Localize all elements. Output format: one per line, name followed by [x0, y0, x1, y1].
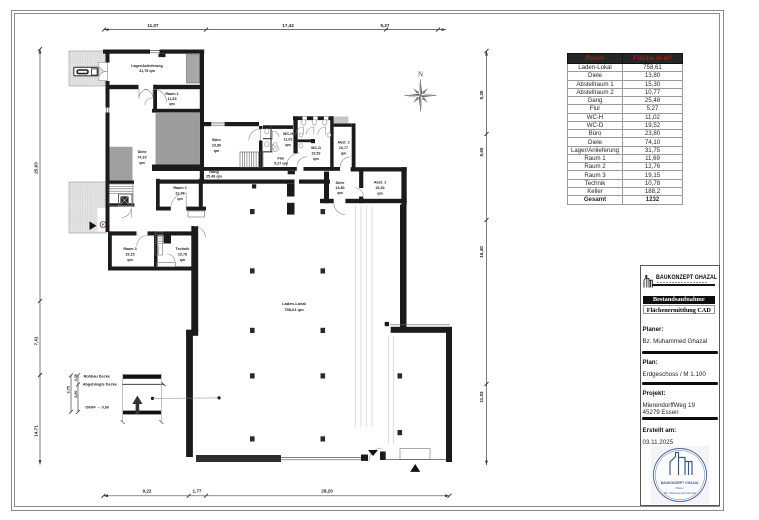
svg-text:19,15: 19,15 — [125, 253, 134, 257]
svg-text:74,10: 74,10 — [137, 156, 146, 160]
svg-text:9,22: 9,22 — [143, 489, 152, 494]
svg-text:28,20: 28,20 — [321, 489, 333, 494]
svg-text:qm: qm — [313, 157, 319, 161]
svg-text:Laden-Lokal: Laden-Lokal — [282, 301, 306, 306]
svg-text:qm: qm — [337, 191, 343, 195]
svg-text:Raum 2: Raum 2 — [173, 186, 186, 190]
svg-text:19,52: 19,52 — [311, 152, 320, 156]
svg-text:25,48 qm: 25,48 qm — [206, 175, 223, 179]
svg-text:17,42: 17,42 — [282, 23, 294, 28]
svg-text:qm: qm — [180, 258, 186, 262]
svg-text:758,61 qm: 758,61 qm — [284, 307, 304, 312]
svg-text:Raum 1: Raum 1 — [165, 92, 178, 96]
svg-text:8,65: 8,65 — [479, 147, 484, 156]
svg-text:11,02: 11,02 — [283, 138, 292, 142]
svg-text:qm: qm — [377, 192, 383, 196]
svg-text:Gang: Gang — [209, 170, 218, 174]
svg-text:Technik: Technik — [176, 247, 191, 251]
svg-text:5,27 qm: 5,27 qm — [274, 162, 288, 166]
svg-text:3,75: 3,75 — [66, 386, 70, 393]
svg-text:N: N — [418, 71, 423, 79]
svg-text:13,80: 13,80 — [335, 186, 344, 190]
svg-text:Büro: Büro — [212, 138, 221, 142]
svg-text:Abst. 1: Abst. 1 — [374, 181, 386, 185]
svg-text:11,03: 11,03 — [479, 391, 484, 403]
svg-text:3,00: 3,00 — [74, 391, 78, 398]
svg-text:qm: qm — [177, 197, 183, 201]
svg-text:qm: qm — [214, 149, 220, 153]
svg-text:Raum 3: Raum 3 — [123, 247, 136, 251]
svg-text:BAUKONZEPT GHAZAL: BAUKONZEPT GHAZAL — [661, 481, 700, 485]
svg-text:11,07: 11,07 — [147, 23, 159, 28]
svg-text:WC-H: WC-H — [283, 132, 293, 136]
svg-text:12,76: 12,76 — [175, 192, 184, 196]
svg-text:Planer:: Planer: — [676, 486, 685, 490]
svg-text:qm: qm — [169, 102, 175, 106]
svg-text:10,78: 10,78 — [178, 253, 187, 257]
svg-text:10,77: 10,77 — [339, 146, 348, 150]
svg-text:23,80: 23,80 — [212, 144, 221, 148]
svg-text:Abgehängte Decke: Abgehängte Decke — [83, 383, 117, 387]
svg-text:25,03: 25,03 — [34, 162, 39, 174]
svg-text:WC-D: WC-D — [311, 146, 321, 150]
svg-text:Abst. 2: Abst. 2 — [337, 141, 349, 145]
svg-text:11,69: 11,69 — [167, 97, 176, 101]
svg-text:Diele: Diele — [138, 150, 147, 154]
svg-text:7,41: 7,41 — [34, 336, 39, 345]
svg-text:16,40: 16,40 — [479, 246, 484, 258]
svg-text:14,71: 14,71 — [34, 425, 39, 437]
svg-text:31,75 qm: 31,75 qm — [139, 69, 156, 73]
svg-text:qm: qm — [341, 152, 347, 156]
svg-text:8,30: 8,30 — [479, 90, 484, 99]
svg-text:qm: qm — [139, 161, 145, 165]
svg-text:Flur: Flur — [278, 157, 286, 161]
svg-text:15,30: 15,30 — [375, 186, 384, 190]
svg-text:Bz. Muhammed Ghazal: Bz. Muhammed Ghazal — [664, 491, 696, 495]
svg-text:0,75: 0,75 — [74, 374, 78, 381]
svg-text:1,77: 1,77 — [193, 489, 202, 494]
svg-text:qm: qm — [127, 258, 133, 262]
svg-text:Rohbau Decke: Rohbau Decke — [84, 375, 110, 379]
svg-text:Diele: Diele — [336, 181, 345, 185]
svg-text:5,27: 5,27 — [381, 23, 390, 28]
svg-text:Lager/Anlieferung: Lager/Anlieferung — [131, 64, 163, 68]
svg-text:OKFF → 0,00: OKFF → 0,00 — [85, 406, 109, 410]
svg-text:qm: qm — [285, 143, 291, 147]
